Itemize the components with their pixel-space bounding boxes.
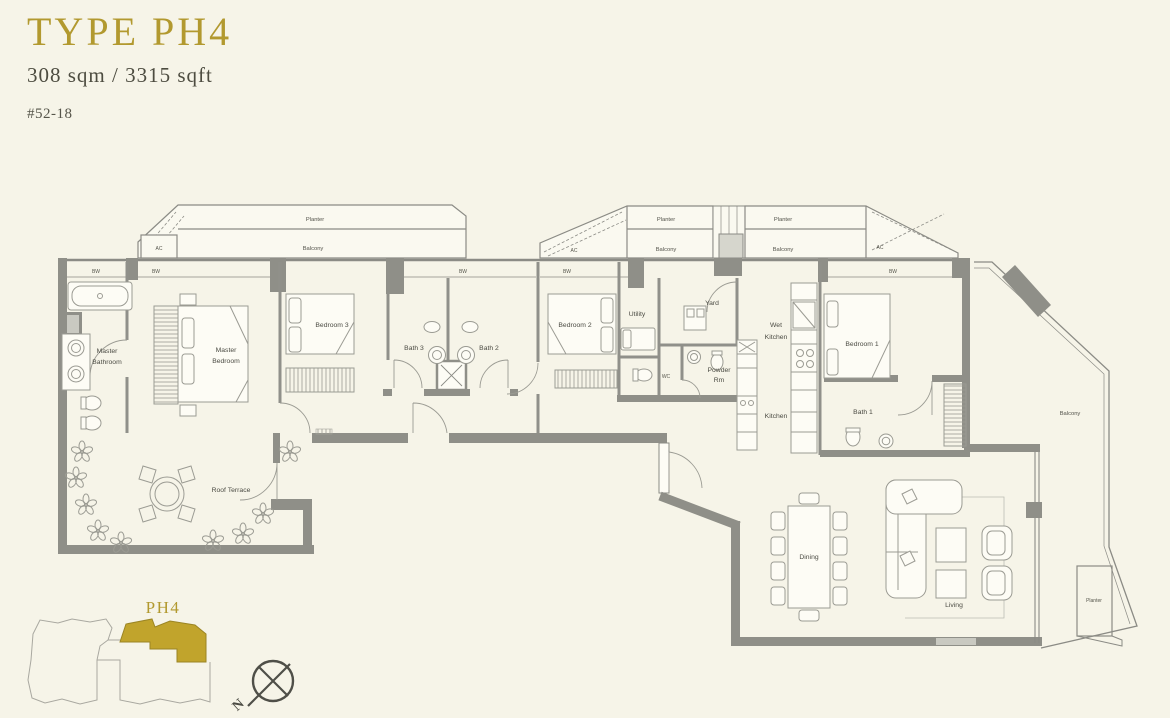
label-bw-1: BW [92,269,100,275]
top-mid-planter-balcony [540,206,713,258]
wc [633,369,652,381]
room-label-wet-kitchen-1: Wet [770,322,782,329]
kitchen-counters [737,283,817,453]
bath-3 [424,322,446,364]
bedroom-3 [286,294,354,392]
sink [688,351,701,364]
label-bw-2: BW [152,269,160,275]
nightstand [180,405,196,416]
bedroom-2 [548,294,617,388]
room-label-bedroom1: Bedroom 1 [845,341,878,348]
floorplan-page: TYPE PH4 308 sqm / 3315 sqft #52-18 [0,0,1170,718]
pillow [601,298,613,323]
room-label-master-bedroom-1: Master [216,347,238,354]
island-counter [737,340,757,450]
utility-room [621,328,655,350]
compass-icon: N [230,661,293,714]
room-label-wet-kitchen-2: Kitchen [765,334,788,341]
nightstand [180,294,196,305]
pillow [182,354,194,384]
room-label-dining: Dining [799,554,818,561]
room-label-kitchen: Kitchen [765,413,788,420]
label-balcony-mid: Balcony [656,247,677,253]
label-ac-left: AC [156,246,163,252]
shaft [437,361,466,390]
room-label-bath2: Bath 2 [479,345,499,352]
room-label-powder-2: Rm [714,377,725,384]
sink [879,434,893,448]
living-set [886,480,1012,618]
keyplan-building-left [28,619,112,704]
coffee-table [936,528,966,562]
keyplan-unit-label: PH4 [146,598,181,617]
compass-north-label: N [230,696,248,714]
yard [684,306,706,330]
terrace-plants [65,441,302,554]
keyplan-building-right [97,660,210,704]
sink [424,322,440,333]
room-label-master-bedroom-2: Bedroom [212,358,240,365]
pillow [182,318,194,348]
room-label-bath3: Bath 3 [404,345,424,352]
wardrobe [286,368,354,392]
room-label-powder-1: Powder [707,367,731,374]
label-bw-3: BW [459,269,467,275]
toilet [458,347,475,364]
room-label-wc: WC [662,374,671,380]
label-planter-right: Planter [774,217,792,223]
pillow [289,327,301,352]
label-balcony-left: Balcony [303,246,324,252]
room-label-utility: Utility [629,311,646,318]
master-bedroom [154,294,248,416]
room-label-bedroom3: Bedroom 3 [315,322,348,329]
label-planter-mid: Planter [657,217,675,223]
sink [462,322,478,333]
pillow [289,298,301,323]
wardrobe [944,384,966,446]
coffee-table [936,570,966,598]
pillow [827,301,838,327]
label-balcony-right: Balcony [773,247,794,253]
room-label-roof-terrace: Roof Terrace [212,487,251,494]
label-bw-4: BW [563,269,571,275]
floor-plan-canvas: Planter Balcony AC Planter Balcony AC Pl… [0,0,1170,718]
label-planter-bottom: Planter [1086,598,1102,604]
toilet [429,347,446,364]
key-plan: PH4 [28,598,210,704]
pillow [827,349,838,375]
wardrobe [555,370,617,388]
room-label-bath1: Bath 1 [853,409,873,416]
sofa-seat [886,480,962,514]
label-balcony-side: Balcony [1060,411,1081,417]
bath-2 [458,322,479,364]
room-label-yard: Yard [705,300,719,307]
terrace-chairs [139,466,195,522]
top-divider-column [713,206,745,258]
label-bw-5: BW [889,269,897,275]
keyplan-unit-ph4 [120,619,206,662]
label-ac-right: AC [877,245,884,251]
room-label-living: Living [945,602,963,609]
label-ac-mid: AC [571,248,578,254]
label-planter-left: Planter [306,217,324,223]
bedroom-1 [824,294,890,378]
roof-terrace [65,441,302,554]
bath-1 [846,428,893,448]
room-label-master-bathroom-1: Master [97,348,119,355]
room-label-master-bathroom-2: Bathroom [92,359,122,366]
pillow [601,327,613,352]
room-label-bedroom2: Bedroom 2 [558,322,591,329]
wardrobe [154,306,178,404]
